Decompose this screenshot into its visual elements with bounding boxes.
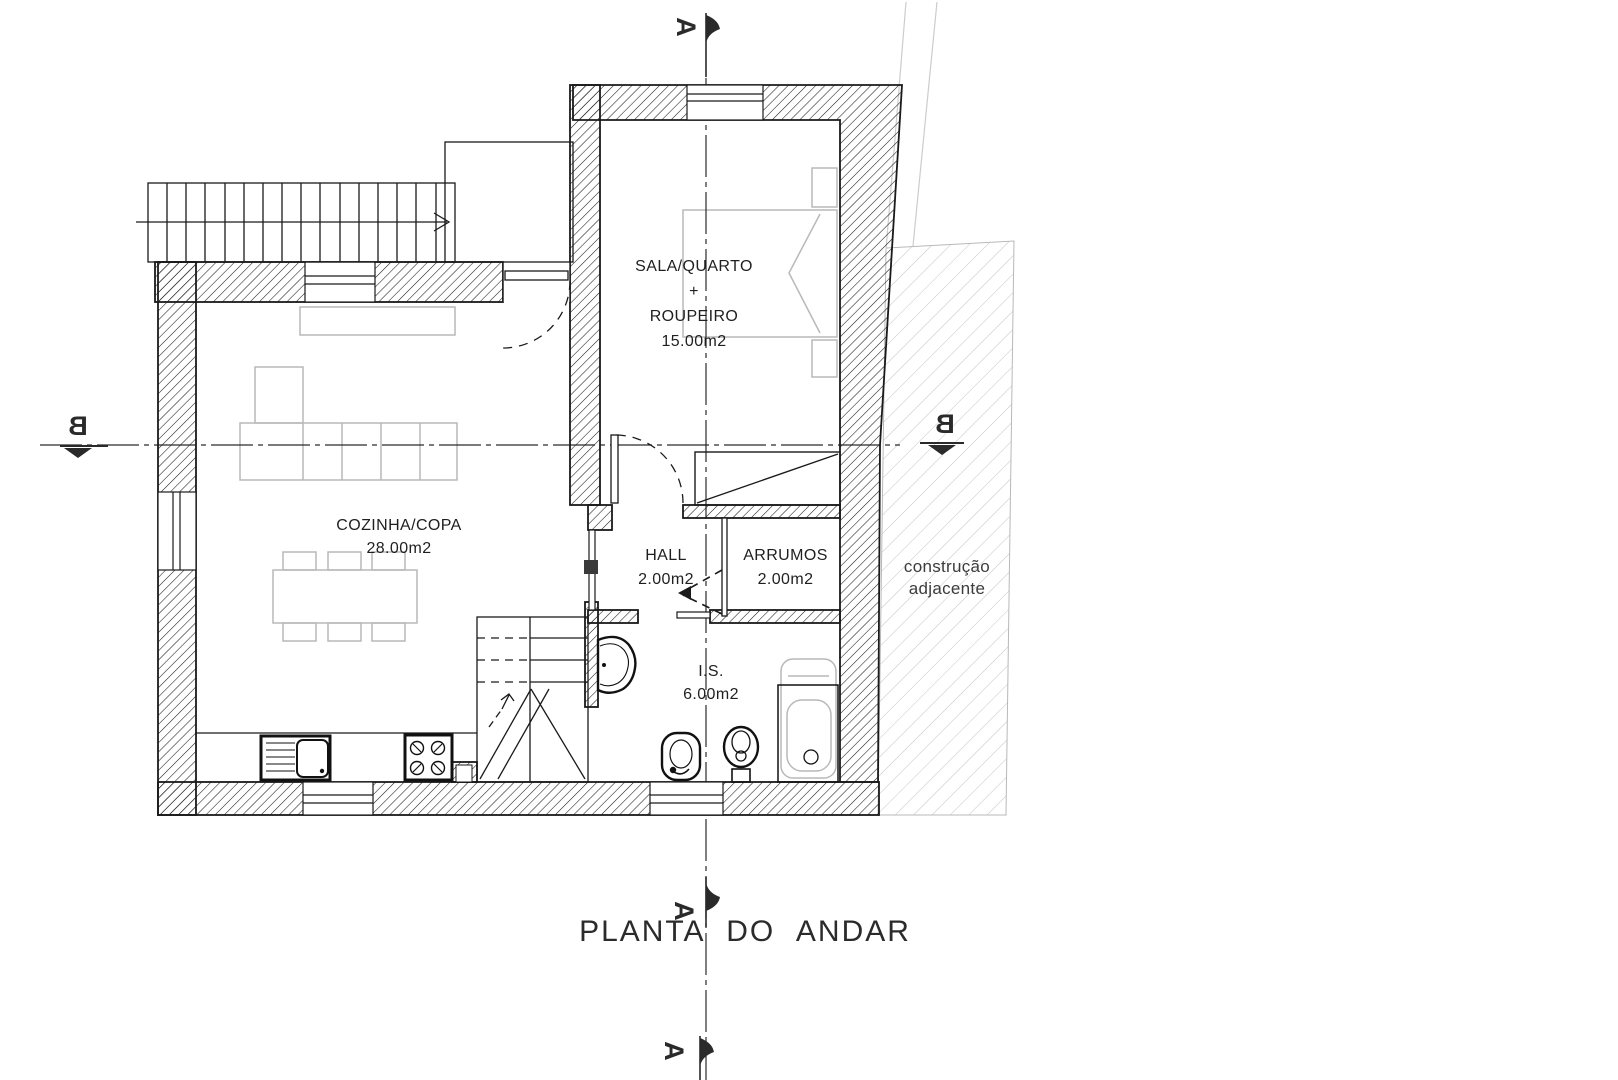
room-label-bedroom: SALA/QUARTO + ROUPEIRO 15.00m2 xyxy=(594,254,794,354)
wall-south xyxy=(158,782,879,815)
room-name: HALL xyxy=(611,544,721,568)
room-name: SALA/QUARTO xyxy=(594,254,794,279)
stairs-up-arrow xyxy=(489,694,514,727)
partitions xyxy=(196,142,727,733)
window-south-bathroom xyxy=(650,782,723,815)
stair-landing xyxy=(445,142,573,262)
room-name: ARRUMOS xyxy=(723,544,848,568)
room-area: 28.00m2 xyxy=(299,537,499,560)
room-area: 15.00m2 xyxy=(594,329,794,354)
toilet xyxy=(724,727,758,782)
window-south-kitchen xyxy=(303,782,373,815)
room-area: 2.00m2 xyxy=(611,568,721,592)
room-name2: ROUPEIRO xyxy=(594,304,794,329)
stairs-exterior xyxy=(136,183,455,262)
wall-foot xyxy=(588,505,612,530)
room-label-hall: HALL 2.00m2 xyxy=(611,544,721,592)
window-bedroom-north xyxy=(687,85,763,120)
room-label-bathroom: I.S. 6.00m2 xyxy=(661,660,761,706)
room-area: 2.00m2 xyxy=(723,568,848,592)
section-marker-b-right: B xyxy=(930,409,960,439)
section-marker-a-mid: A xyxy=(669,896,699,926)
kitchen-sink xyxy=(261,736,330,780)
bathtub-tub xyxy=(781,659,836,778)
room-label-kitchen: COZINHA/COPA 28.00m2 xyxy=(299,514,499,560)
room-name: I.S. xyxy=(661,660,761,683)
wardrobe xyxy=(695,452,840,505)
room-name: COZINHA/COPA xyxy=(299,514,499,537)
sofa xyxy=(240,307,457,480)
dining-table xyxy=(273,552,417,641)
section-a-top-arrow xyxy=(706,13,720,77)
section-b-left-arrow xyxy=(60,446,108,458)
stove xyxy=(405,735,452,780)
entry-door xyxy=(503,262,570,348)
bidet xyxy=(662,733,700,780)
washbasin xyxy=(598,637,635,693)
wall-bedroom-south xyxy=(683,505,840,518)
room-area: 6.00m2 xyxy=(661,683,761,706)
floor-plan-sheet: SALA/QUARTO + ROUPEIRO 15.00m2 COZINHA/C… xyxy=(0,0,1618,1080)
stairs-interior xyxy=(477,617,588,782)
page-title: PLANTA DO ANDAR xyxy=(565,920,925,944)
section-marker-b-left: B xyxy=(63,411,93,441)
section-marker-a-bottom: A xyxy=(659,1036,689,1066)
window-west xyxy=(158,492,196,570)
room-label-arrumos: ARRUMOS 2.00m2 xyxy=(723,544,848,592)
column xyxy=(584,560,598,574)
adjacent-construction-label: construção adjacente xyxy=(877,556,1017,600)
window-kitchen-north xyxy=(305,262,375,302)
section-marker-a-top: A xyxy=(671,12,701,42)
wall-bath-west-post xyxy=(585,602,598,707)
room-name-plus: + xyxy=(594,279,794,304)
section-a-bottom-arrow xyxy=(700,1036,714,1080)
wall-bath-north-right xyxy=(710,610,840,623)
